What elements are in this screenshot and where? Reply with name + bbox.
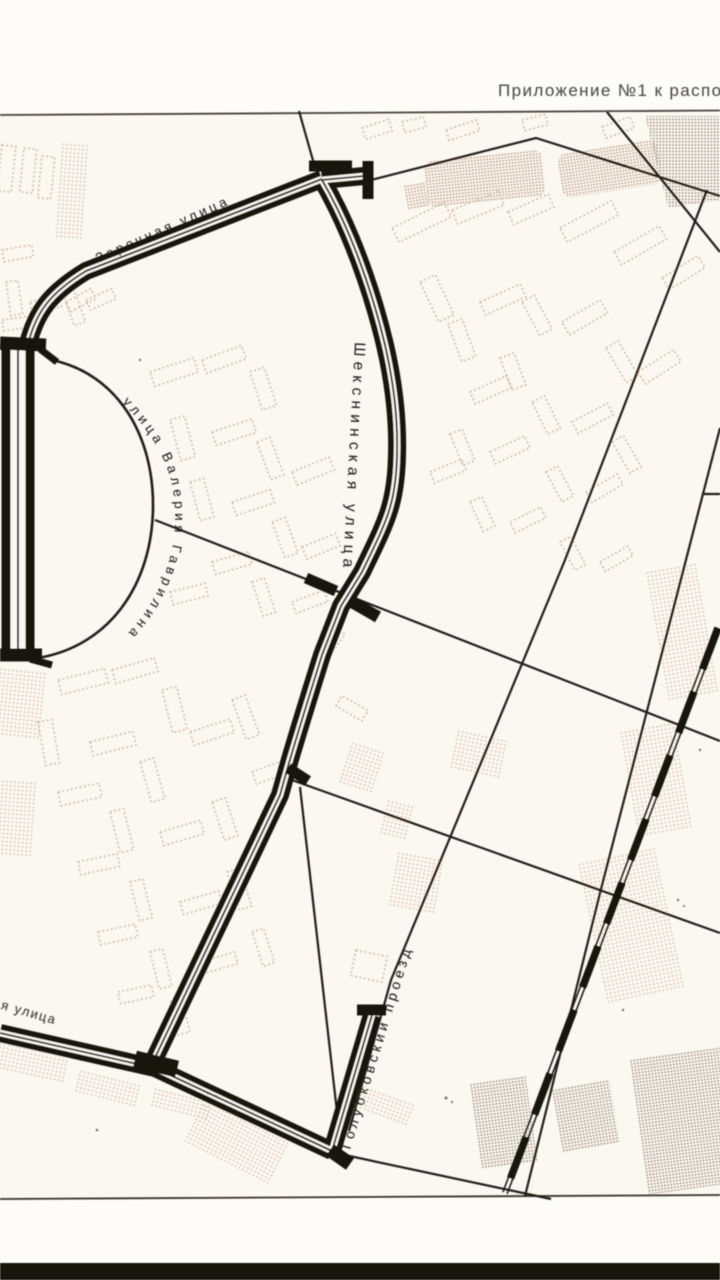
svg-text:Приложение №1 к распор: Приложение №1 к распор [498,81,720,100]
